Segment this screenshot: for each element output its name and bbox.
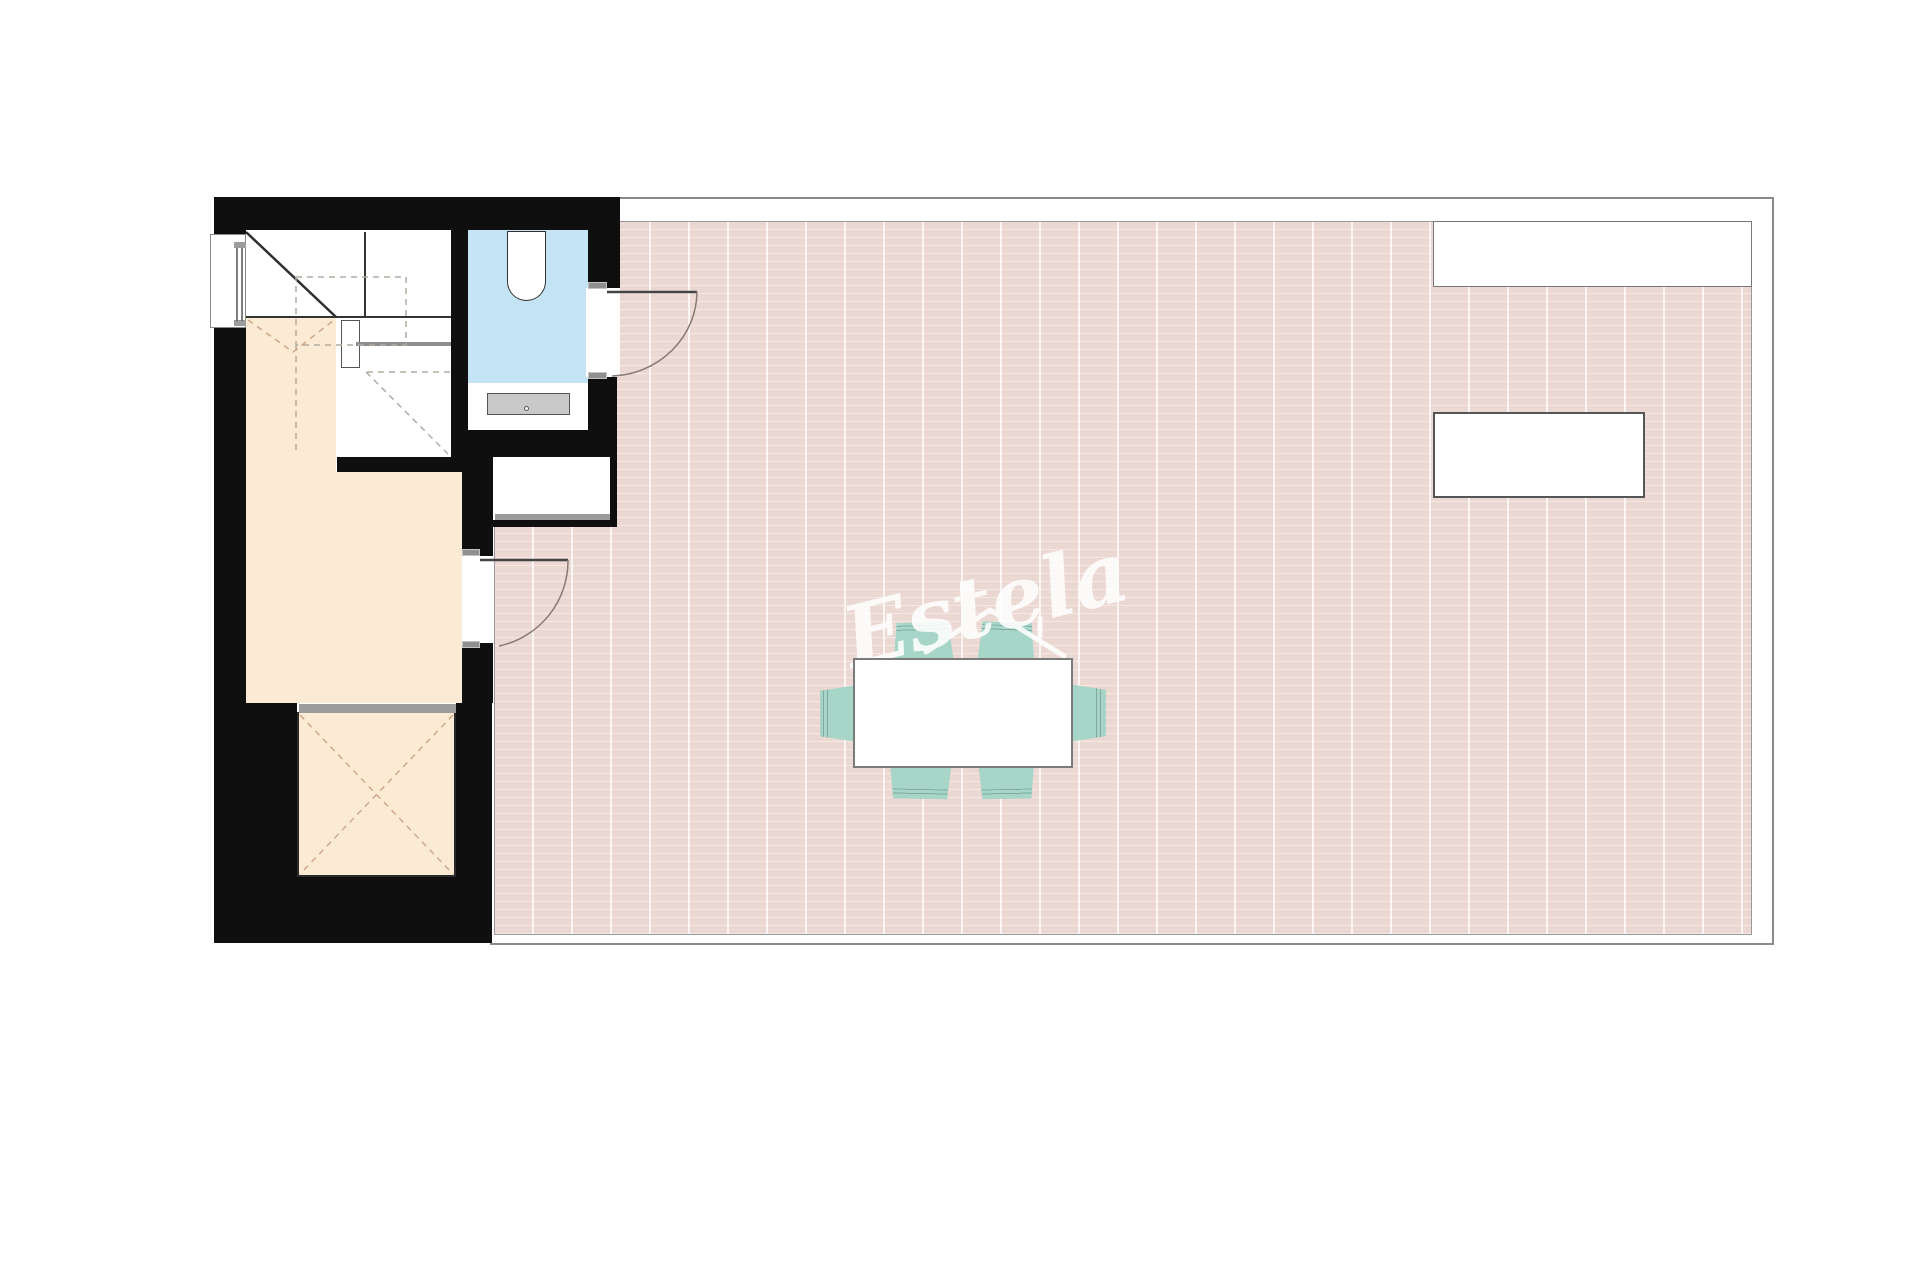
- chair-top-right: [977, 621, 1035, 663]
- sink-drain-icon: [524, 406, 529, 411]
- closet-sill: [495, 514, 610, 520]
- chair-right: [1068, 684, 1106, 742]
- dining-table: [853, 658, 1073, 768]
- chair-backrest: [823, 688, 830, 738]
- chair-top-left: [892, 621, 953, 663]
- peach-room-lower: [246, 472, 462, 703]
- bathroom-sink: [487, 393, 570, 415]
- wall-top-band: [214, 197, 620, 230]
- chair-backrest: [982, 789, 1032, 797]
- closet-niche: [493, 457, 610, 520]
- chair-backrest: [892, 789, 948, 797]
- floor-plan: Estela: [0, 0, 1920, 1280]
- terrace-table-right: [1433, 412, 1645, 498]
- bathroom-door-jamb-bottom: [588, 372, 607, 379]
- wall-bath-south-band: [451, 430, 617, 457]
- window-cap-top: [234, 242, 246, 248]
- chair-backrest: [982, 624, 1032, 633]
- wall-stub-mid: [337, 457, 462, 472]
- wall-bottom-band: [214, 877, 492, 943]
- living-door-jamb-top: [462, 549, 480, 556]
- living-door-jamb-bottom: [462, 641, 480, 648]
- window-cap-bottom: [234, 320, 246, 326]
- terrace-tiled-floor: [494, 221, 1752, 935]
- wall-stair-bath-divider: [451, 230, 468, 430]
- living-door-opening: [462, 556, 493, 643]
- window-left: [210, 234, 246, 328]
- terrace-planter-top: [1433, 221, 1752, 287]
- wall-bath-right-upper: [586, 197, 620, 288]
- stair-newel-box: [341, 320, 360, 368]
- wall-right-lower-column: [456, 703, 492, 943]
- peach-room-sill: [299, 704, 456, 713]
- bathroom-door-opening: [586, 288, 620, 377]
- bathroom-door-jamb-top: [588, 282, 607, 289]
- elevator-shaft: [297, 712, 456, 877]
- peach-room-upper: [246, 317, 336, 472]
- toilet-bowl: [507, 256, 546, 301]
- chair-backrest: [896, 624, 949, 633]
- wall-below-door: [462, 643, 493, 703]
- chair-backrest: [1096, 687, 1103, 738]
- toilet-tank: [507, 231, 546, 257]
